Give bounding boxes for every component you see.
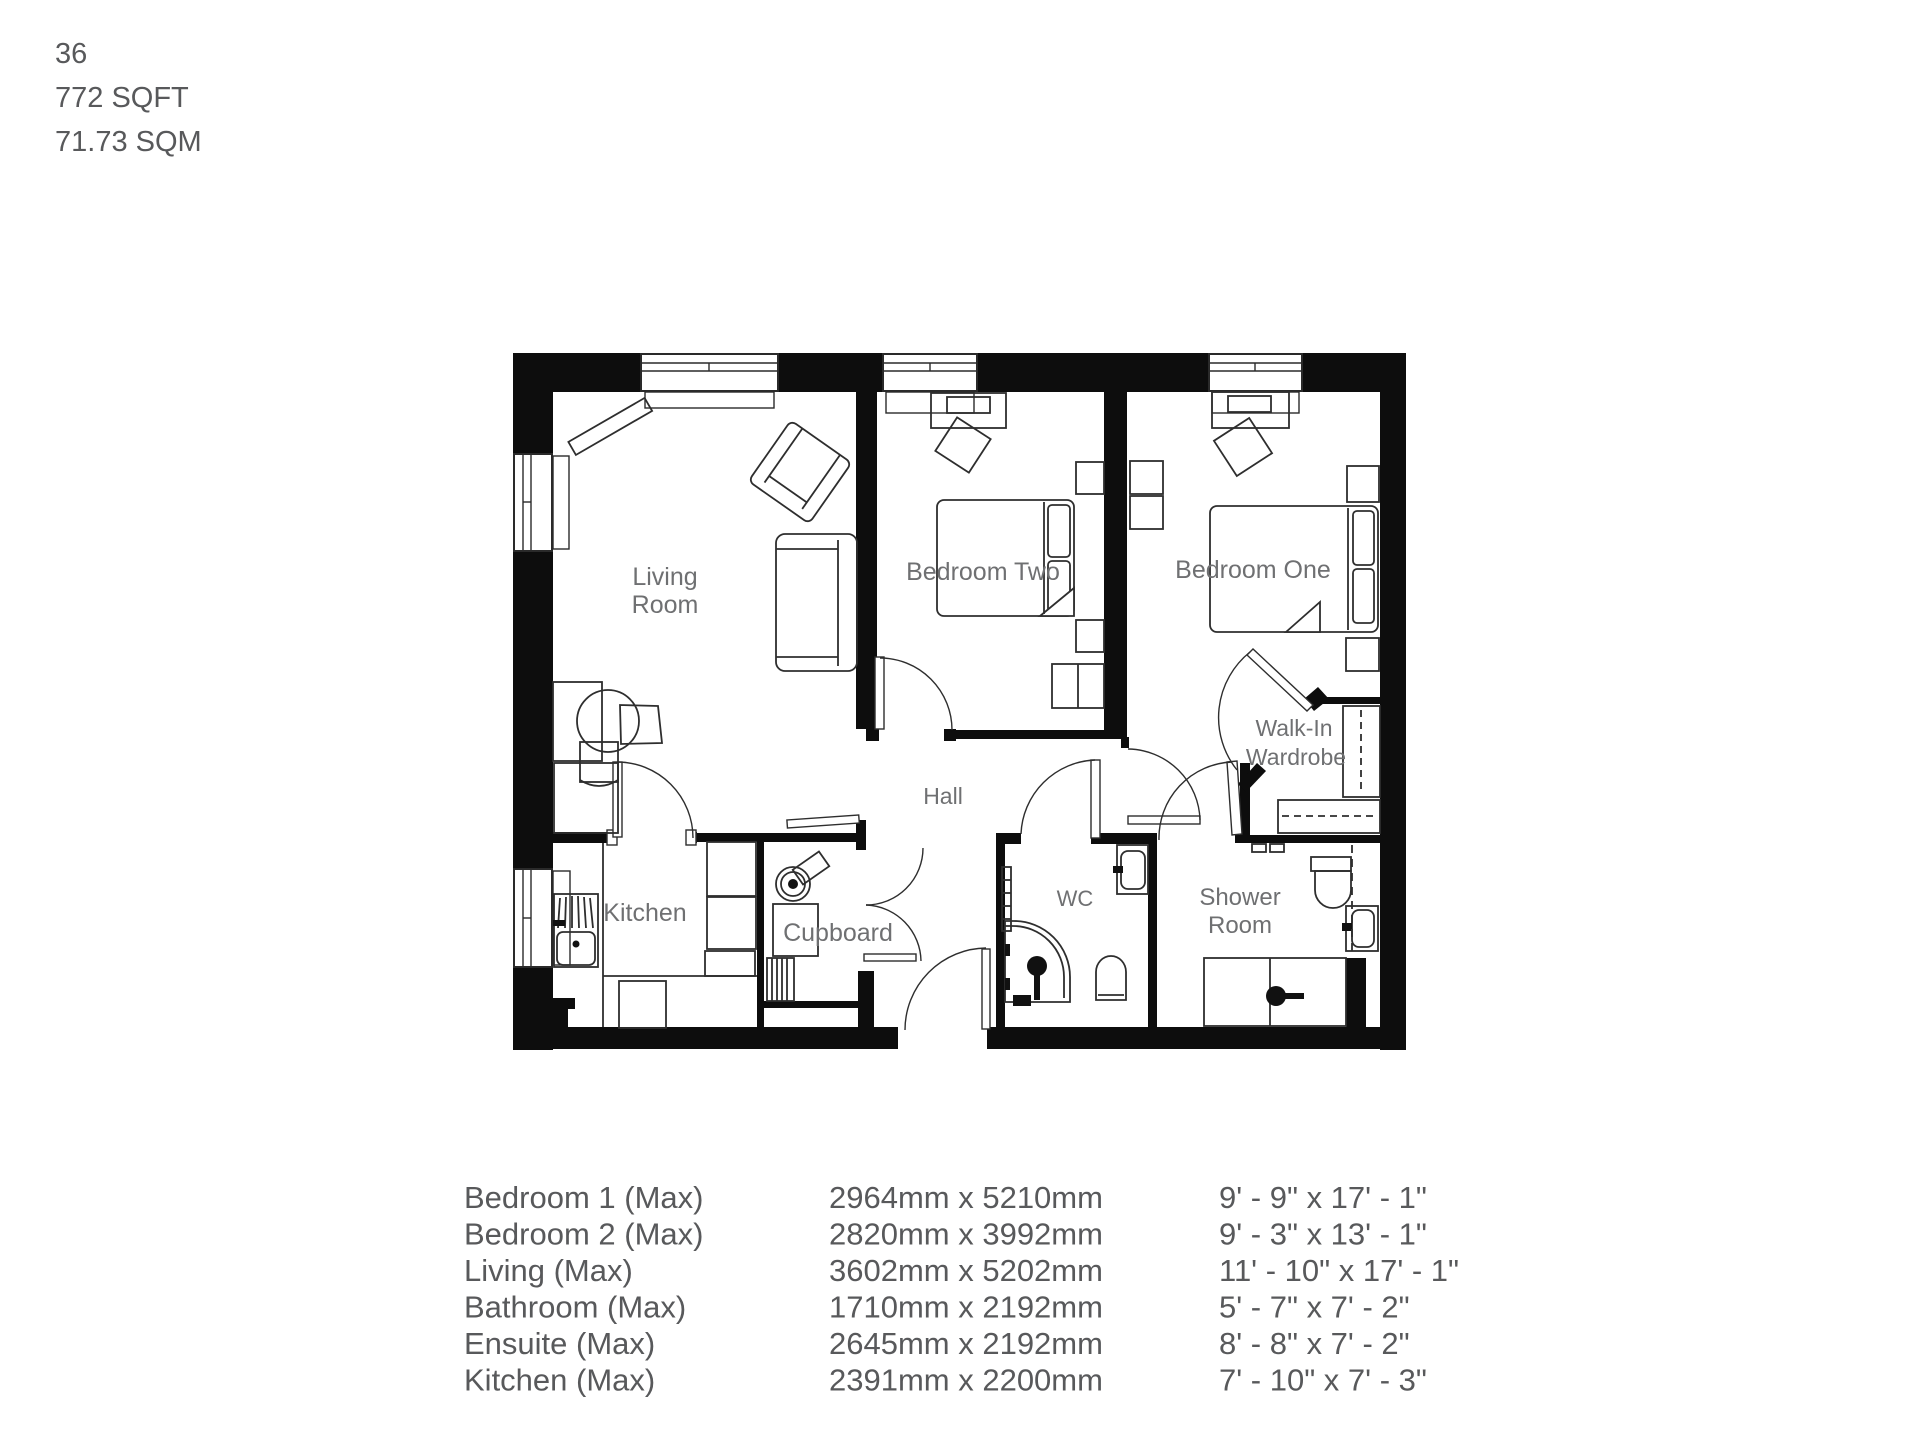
svg-text:71.73 SQM: 71.73 SQM (55, 126, 202, 158)
svg-text:Room: Room (632, 591, 699, 619)
svg-text:Living (Max): Living (Max) (464, 1253, 633, 1288)
svg-text:Bedroom 1 (Max): Bedroom 1 (Max) (464, 1180, 703, 1215)
svg-text:Bedroom Two: Bedroom Two (906, 558, 1060, 586)
svg-text:2645mm x 2192mm: 2645mm x 2192mm (829, 1326, 1103, 1361)
svg-text:Shower: Shower (1199, 884, 1280, 911)
svg-text:2391mm x 2200mm: 2391mm x 2200mm (829, 1363, 1103, 1398)
svg-text:8' - 8" x 7' - 2": 8' - 8" x 7' - 2" (1219, 1326, 1410, 1361)
svg-text:3602mm x 5202mm: 3602mm x 5202mm (829, 1253, 1103, 1288)
svg-text:Living: Living (632, 563, 697, 591)
svg-text:Bathroom (Max): Bathroom (Max) (464, 1290, 686, 1325)
svg-text:2820mm x 3992mm: 2820mm x 3992mm (829, 1217, 1103, 1252)
svg-text:Ensuite (Max): Ensuite (Max) (464, 1326, 655, 1361)
svg-text:Walk-In: Walk-In (1255, 715, 1332, 741)
svg-text:36: 36 (55, 38, 87, 70)
svg-text:9' - 3" x 13' - 1": 9' - 3" x 13' - 1" (1219, 1217, 1427, 1252)
svg-text:WC: WC (1057, 886, 1094, 911)
svg-text:9' - 9" x 17' - 1": 9' - 9" x 17' - 1" (1219, 1180, 1427, 1215)
svg-text:Kitchen: Kitchen (603, 899, 686, 927)
svg-text:5' - 7" x 7' - 2": 5' - 7" x 7' - 2" (1219, 1290, 1410, 1325)
svg-text:11' - 10" x 17' - 1": 11' - 10" x 17' - 1" (1219, 1253, 1459, 1288)
svg-text:Room: Room (1208, 912, 1272, 939)
svg-text:1710mm x 2192mm: 1710mm x 2192mm (829, 1290, 1103, 1325)
svg-text:Hall: Hall (923, 783, 963, 809)
svg-text:7' - 10" x 7' - 3": 7' - 10" x 7' - 3" (1219, 1363, 1427, 1398)
svg-text:Bedroom 2 (Max): Bedroom 2 (Max) (464, 1217, 703, 1252)
svg-text:Cupboard: Cupboard (783, 919, 893, 947)
svg-text:Wardrobe: Wardrobe (1246, 744, 1346, 770)
svg-text:Bedroom One: Bedroom One (1175, 556, 1331, 584)
svg-text:Kitchen (Max): Kitchen (Max) (464, 1363, 655, 1398)
svg-text:772 SQFT: 772 SQFT (55, 82, 189, 114)
svg-text:2964mm x 5210mm: 2964mm x 5210mm (829, 1180, 1103, 1215)
